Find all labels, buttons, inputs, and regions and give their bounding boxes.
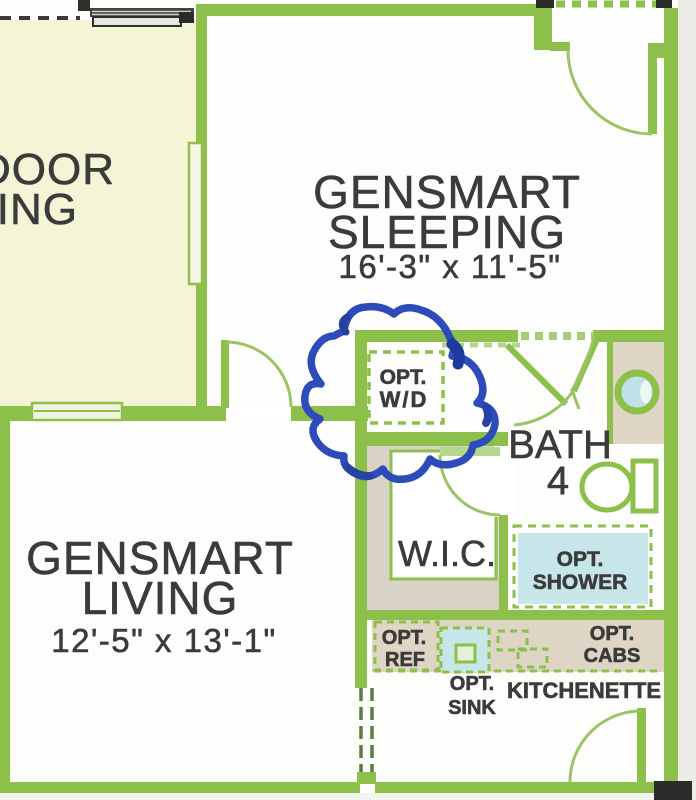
svg-text:SINK: SINK: [448, 697, 496, 719]
svg-text:16'-3" x 11'-5": 16'-3" x 11'-5": [338, 248, 561, 285]
svg-text:W/D: W/D: [380, 387, 429, 412]
svg-text:SHOWER: SHOWER: [533, 571, 628, 594]
svg-text:REF: REF: [385, 649, 425, 671]
svg-text:4: 4: [547, 459, 569, 503]
svg-text:OPT.: OPT.: [590, 623, 634, 645]
svg-text:OPT.: OPT.: [557, 548, 604, 571]
svg-text:CABS: CABS: [584, 645, 641, 667]
svg-text:LIVING: LIVING: [0, 185, 78, 234]
svg-text:OPT.: OPT.: [380, 366, 427, 389]
svg-text:OPT.: OPT.: [382, 627, 426, 649]
svg-text:W.I.C.: W.I.C.: [398, 533, 496, 574]
svg-text:12'-5" x 13'-1": 12'-5" x 13'-1": [51, 622, 276, 659]
svg-text:OPT.: OPT.: [450, 673, 494, 695]
svg-text:KITCHENETTE: KITCHENETTE: [507, 678, 661, 703]
svg-text:LIVING: LIVING: [82, 572, 239, 624]
